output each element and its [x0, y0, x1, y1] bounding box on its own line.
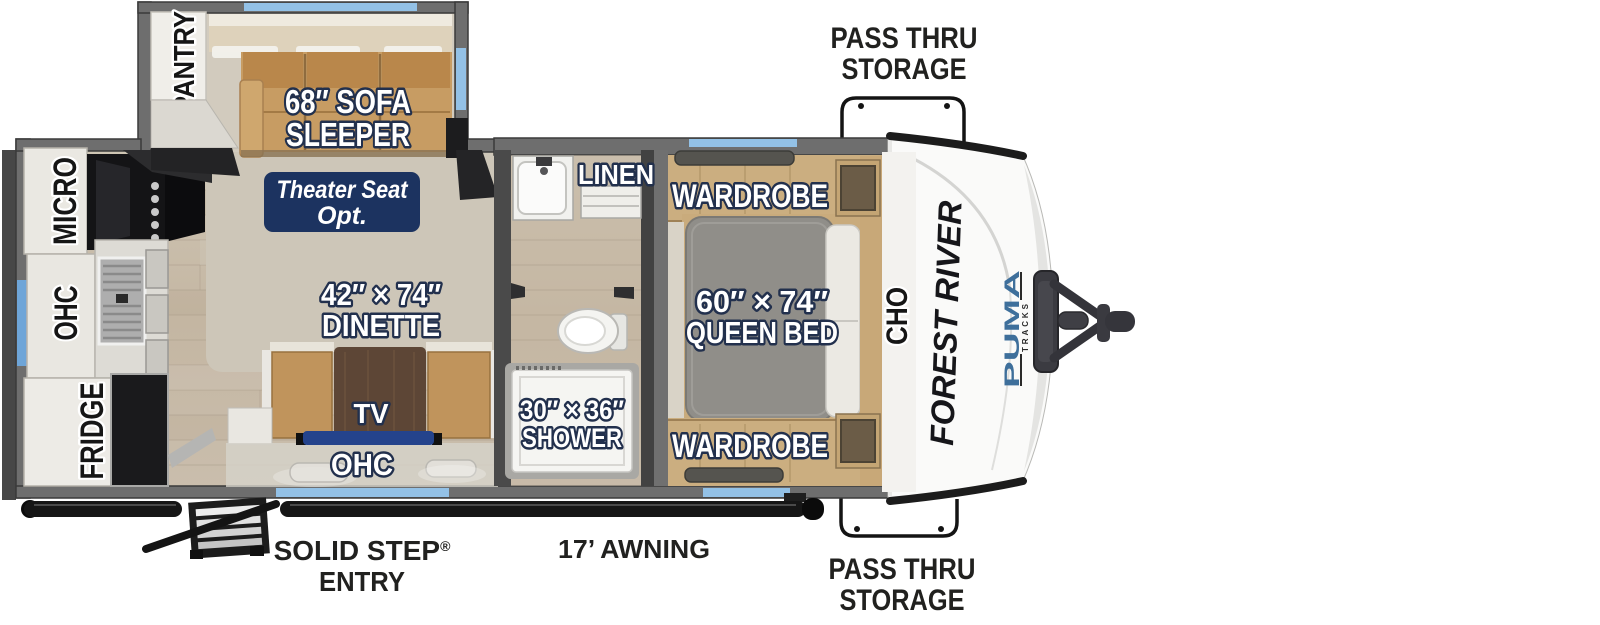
svg-text:30″ × 36″: 30″ × 36″: [520, 395, 624, 425]
svg-text:SHOWER: SHOWER: [522, 423, 622, 453]
svg-text:60″ × 74″: 60″ × 74″: [696, 284, 828, 319]
svg-text:Theater Seat: Theater Seat: [277, 176, 409, 204]
svg-text:MICRO: MICRO: [47, 157, 83, 245]
svg-text:ENTRY: ENTRY: [319, 566, 405, 597]
svg-text:WARDROBE: WARDROBE: [672, 178, 828, 214]
svg-text:68″ SOFA: 68″ SOFA: [285, 83, 411, 120]
svg-text:17’ AWNING: 17’ AWNING: [558, 534, 710, 564]
svg-text:TV: TV: [354, 398, 389, 429]
svg-text:TRACKS: TRACKS: [1021, 302, 1030, 352]
svg-text:CHO: CHO: [881, 287, 914, 345]
svg-text:LINEN: LINEN: [578, 159, 654, 190]
svg-text:STORAGE: STORAGE: [840, 584, 965, 617]
svg-text:SOLID STEP®: SOLID STEP®: [274, 535, 451, 566]
svg-text:OHC: OHC: [331, 447, 393, 482]
svg-text:PASS THRU: PASS THRU: [829, 553, 976, 586]
svg-text:PANTRY: PANTRY: [169, 11, 201, 113]
svg-text:QUEEN BED: QUEEN BED: [686, 315, 838, 350]
svg-text:WARDROBE: WARDROBE: [672, 428, 828, 464]
svg-text:Opt.: Opt.: [317, 202, 367, 230]
svg-text:42″ × 74″: 42″ × 74″: [321, 277, 441, 312]
svg-text:SLEEPER: SLEEPER: [286, 116, 410, 153]
svg-text:PASS THRU: PASS THRU: [831, 22, 978, 55]
svg-text:FRIDGE: FRIDGE: [74, 383, 110, 480]
svg-text:DINETTE: DINETTE: [322, 308, 440, 343]
svg-text:STORAGE: STORAGE: [842, 53, 967, 86]
svg-text:OHC: OHC: [48, 286, 84, 341]
